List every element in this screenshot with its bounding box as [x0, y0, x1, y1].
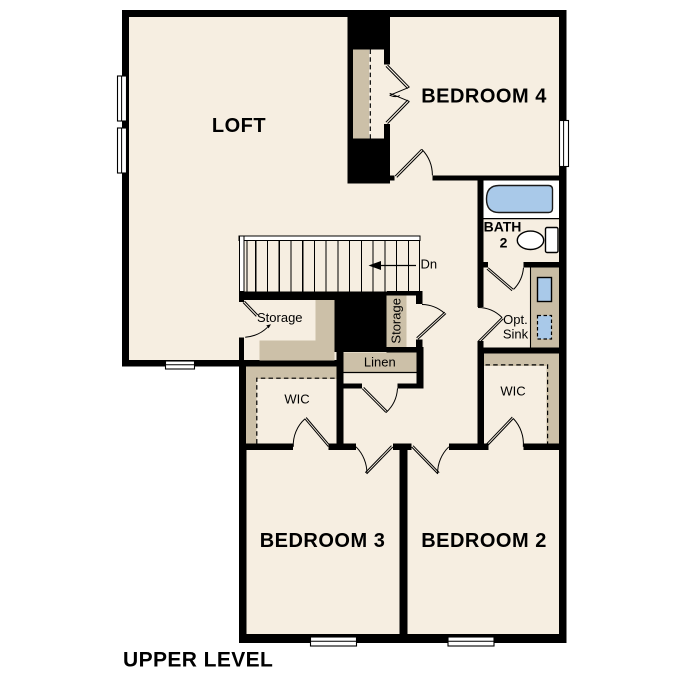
- svg-text:LOFT: LOFT: [212, 115, 266, 137]
- svg-text:WIC: WIC: [284, 392, 309, 407]
- svg-text:Opt.: Opt.: [503, 312, 528, 327]
- svg-text:Linen: Linen: [364, 355, 396, 370]
- svg-text:Sink: Sink: [503, 327, 529, 342]
- svg-text:BEDROOM 2: BEDROOM 2: [421, 530, 547, 552]
- svg-text:BATH: BATH: [484, 219, 522, 235]
- svg-text:Storage: Storage: [257, 310, 303, 325]
- svg-text:BEDROOM 4: BEDROOM 4: [421, 86, 547, 108]
- svg-text:2: 2: [500, 235, 508, 251]
- svg-text:WIC: WIC: [500, 384, 525, 399]
- svg-text:BEDROOM 3: BEDROOM 3: [260, 530, 386, 552]
- svg-text:UPPER LEVEL: UPPER LEVEL: [123, 649, 273, 672]
- svg-text:Storage: Storage: [389, 298, 404, 344]
- svg-text:Dn: Dn: [421, 257, 438, 272]
